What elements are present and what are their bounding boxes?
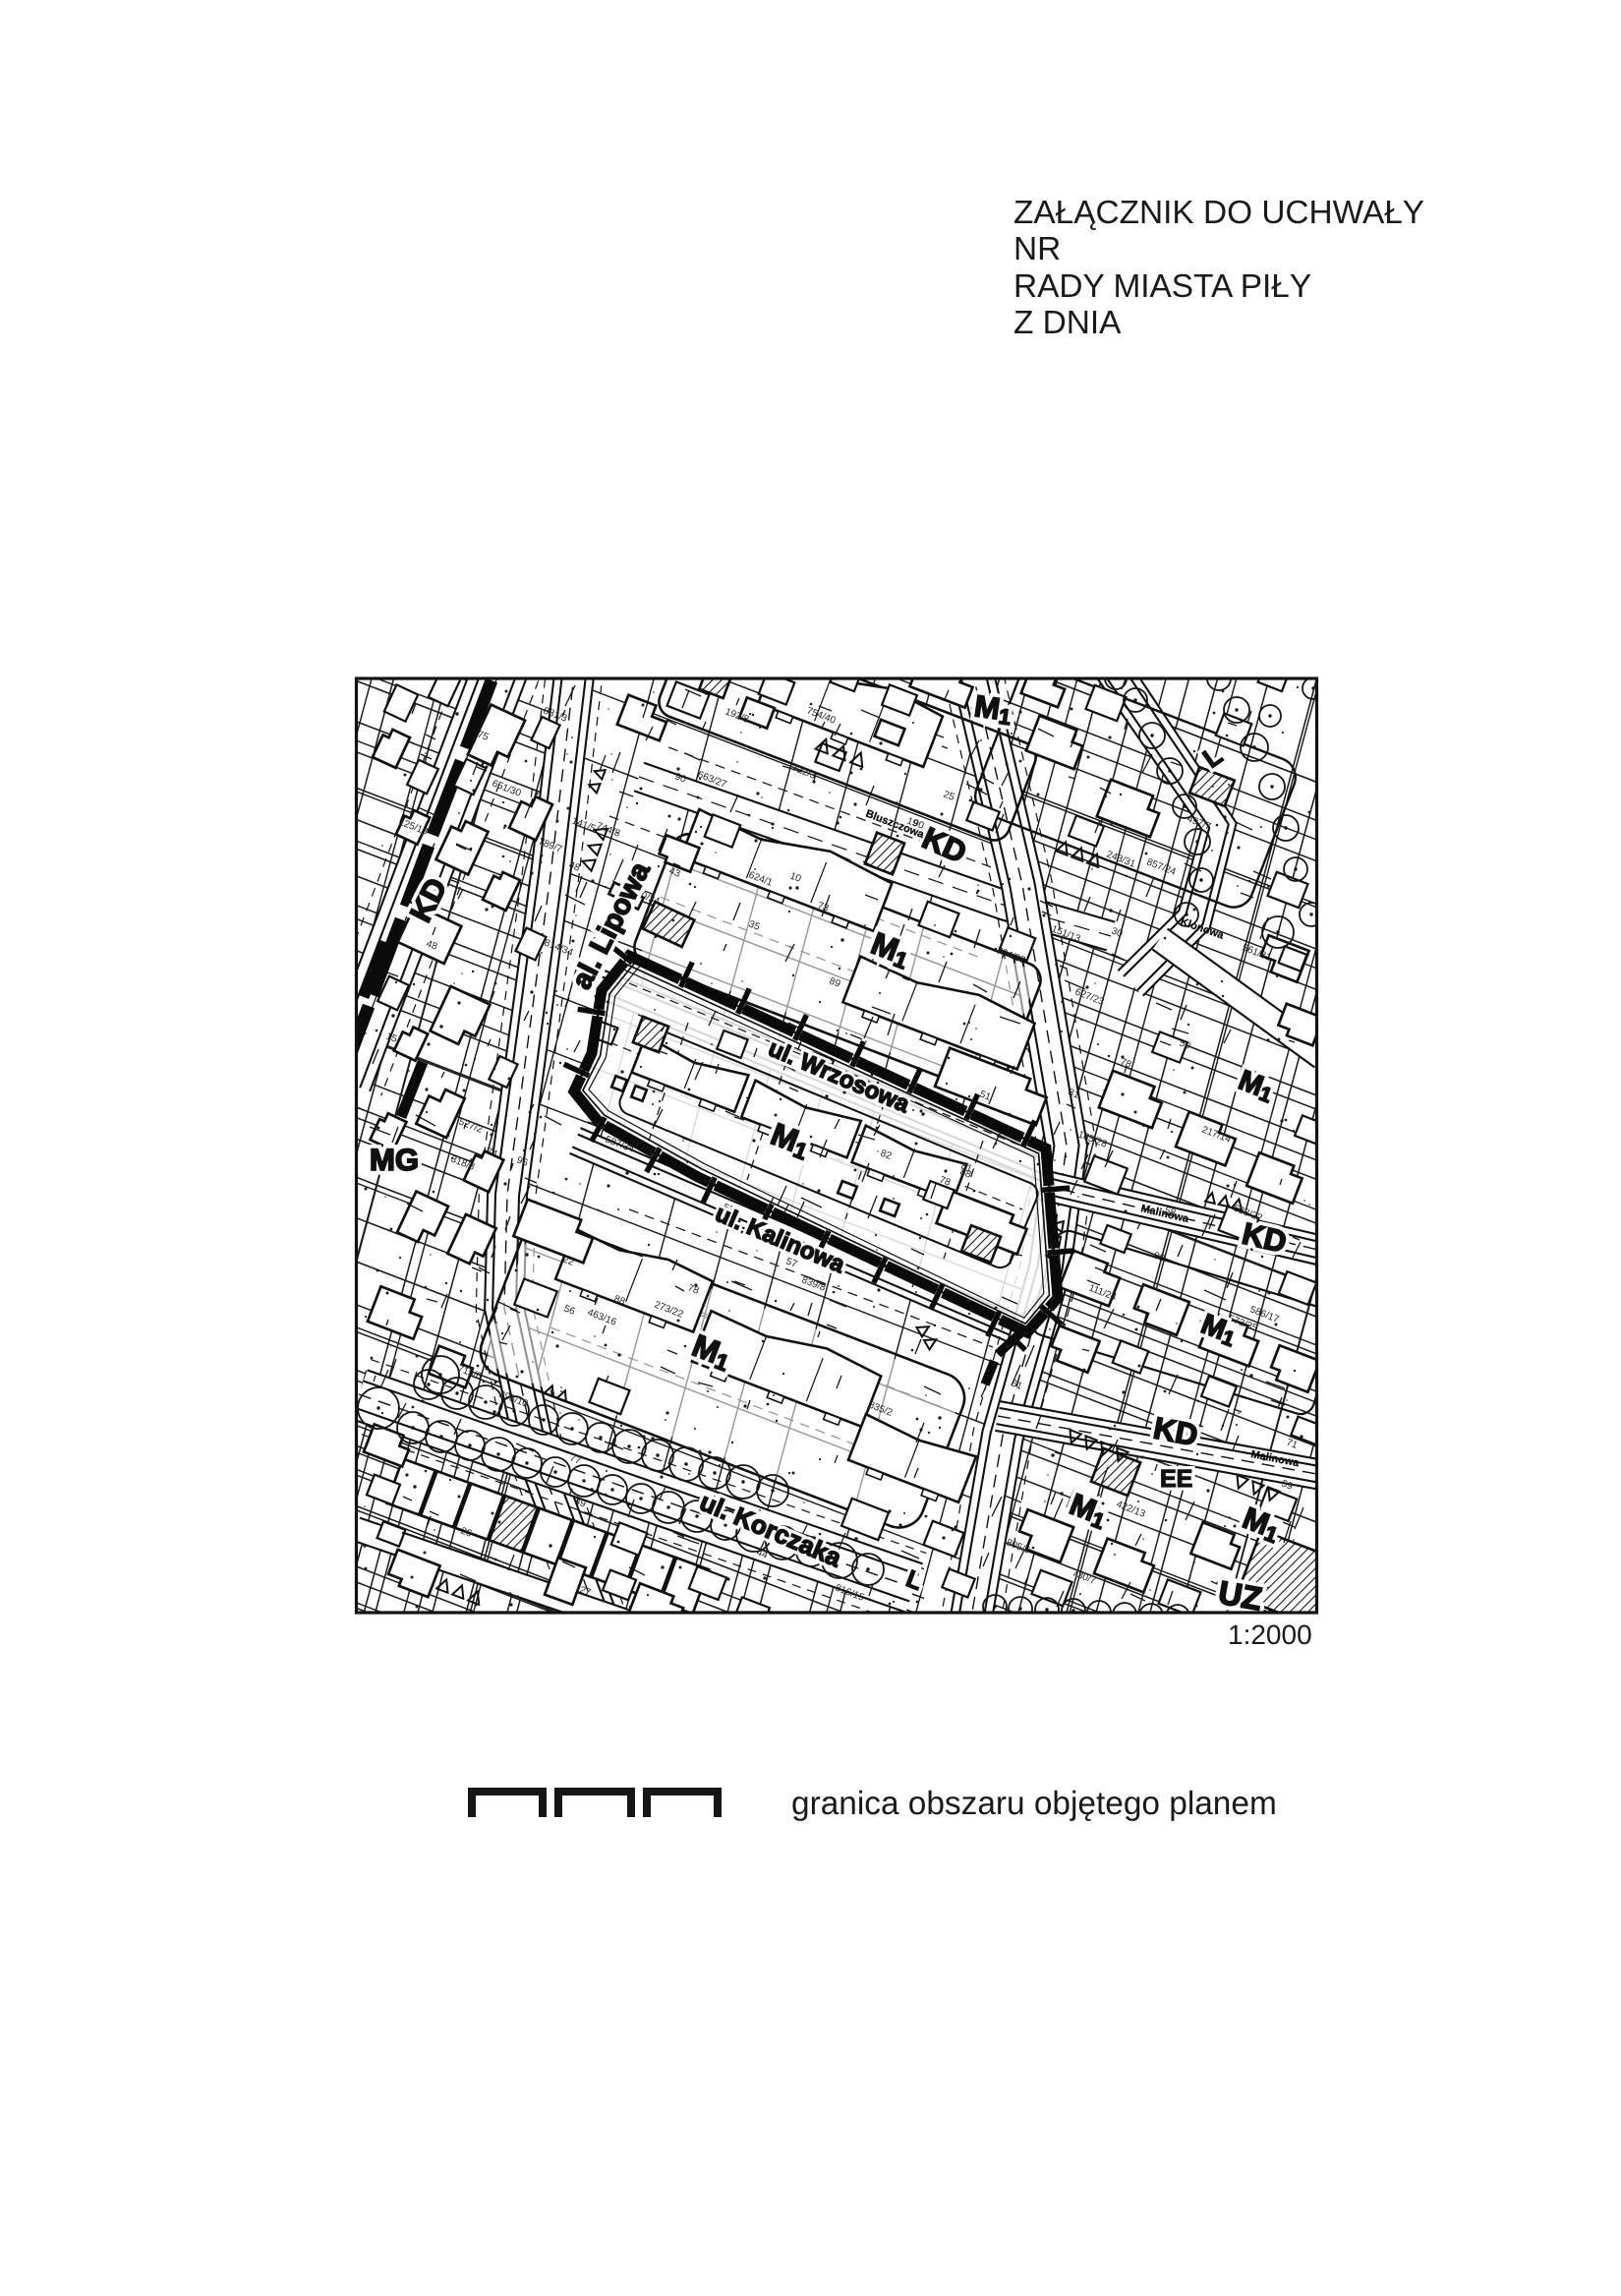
svg-text:318/8: 318/8: [449, 1154, 477, 1173]
svg-text:651/30: 651/30: [491, 779, 523, 799]
svg-text:1:2000: 1:2000: [1228, 1619, 1312, 1650]
svg-text:805/6: 805/6: [1005, 1538, 1032, 1557]
svg-text:granica obszaru objętego plane: granica obszaru objętego planem: [791, 1786, 1277, 1822]
svg-text:25: 25: [942, 790, 956, 803]
svg-text:UZ: UZ: [1216, 1573, 1265, 1617]
svg-text:243/31: 243/31: [1105, 850, 1137, 870]
svg-text:99: 99: [1152, 1251, 1167, 1265]
svg-text:527/2: 527/2: [457, 1117, 485, 1136]
svg-text:722/3: 722/3: [790, 763, 818, 782]
svg-text:MG: MG: [370, 1143, 419, 1177]
svg-text:EE: EE: [1160, 1465, 1192, 1493]
svg-text:857/24: 857/24: [1145, 857, 1178, 878]
